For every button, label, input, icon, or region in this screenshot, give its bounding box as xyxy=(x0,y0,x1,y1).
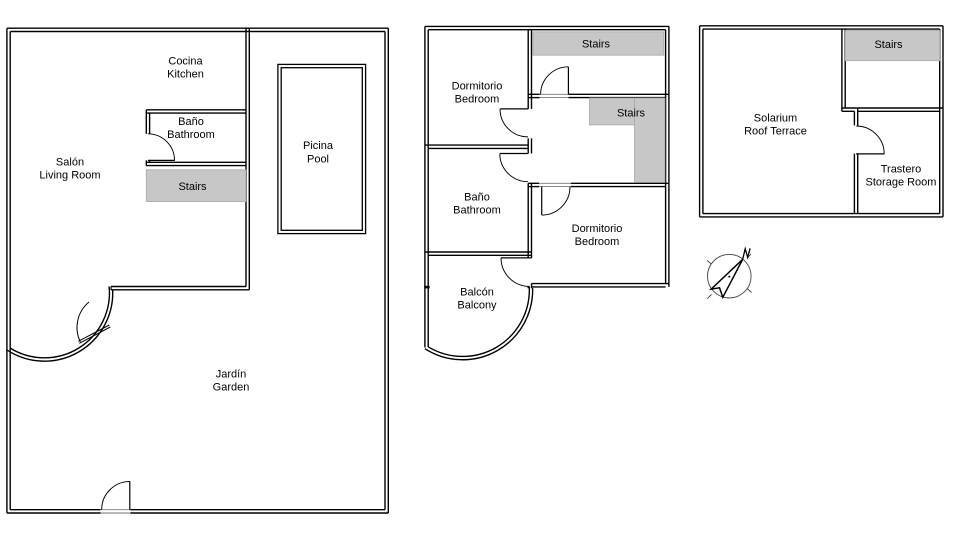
svg-text:Balcón: Balcón xyxy=(460,286,494,298)
svg-text:Baño: Baño xyxy=(178,116,204,128)
svg-text:Picina: Picina xyxy=(303,140,334,152)
svg-text:Dormitorio: Dormitorio xyxy=(572,223,623,235)
svg-text:Pool: Pool xyxy=(307,153,329,165)
svg-text:Garden: Garden xyxy=(213,381,250,393)
svg-text:Dormitorio: Dormitorio xyxy=(452,80,503,92)
svg-text:Stairs: Stairs xyxy=(874,39,903,51)
svg-text:Jardín: Jardín xyxy=(216,368,247,380)
svg-text:Trastero: Trastero xyxy=(881,163,922,175)
svg-text:Stairs: Stairs xyxy=(582,38,611,50)
svg-text:Stairs: Stairs xyxy=(178,181,207,193)
svg-text:Bedroom: Bedroom xyxy=(575,236,620,248)
svg-text:Bedroom: Bedroom xyxy=(455,93,500,105)
svg-text:Salón: Salón xyxy=(56,156,84,168)
svg-text:Stairs: Stairs xyxy=(617,107,646,119)
svg-text:Living Room: Living Room xyxy=(39,169,100,181)
svg-text:Baño: Baño xyxy=(464,191,490,203)
svg-text:Balcony: Balcony xyxy=(457,299,497,311)
svg-text:Solarium: Solarium xyxy=(754,112,797,124)
svg-text:Bathroom: Bathroom xyxy=(453,204,501,216)
svg-text:Bathroom: Bathroom xyxy=(167,129,215,141)
svg-text:Kitchen: Kitchen xyxy=(167,68,204,80)
svg-text:Roof Terrace: Roof Terrace xyxy=(744,125,807,137)
svg-text:Storage Room: Storage Room xyxy=(866,176,937,188)
svg-text:Cocina: Cocina xyxy=(168,55,203,67)
